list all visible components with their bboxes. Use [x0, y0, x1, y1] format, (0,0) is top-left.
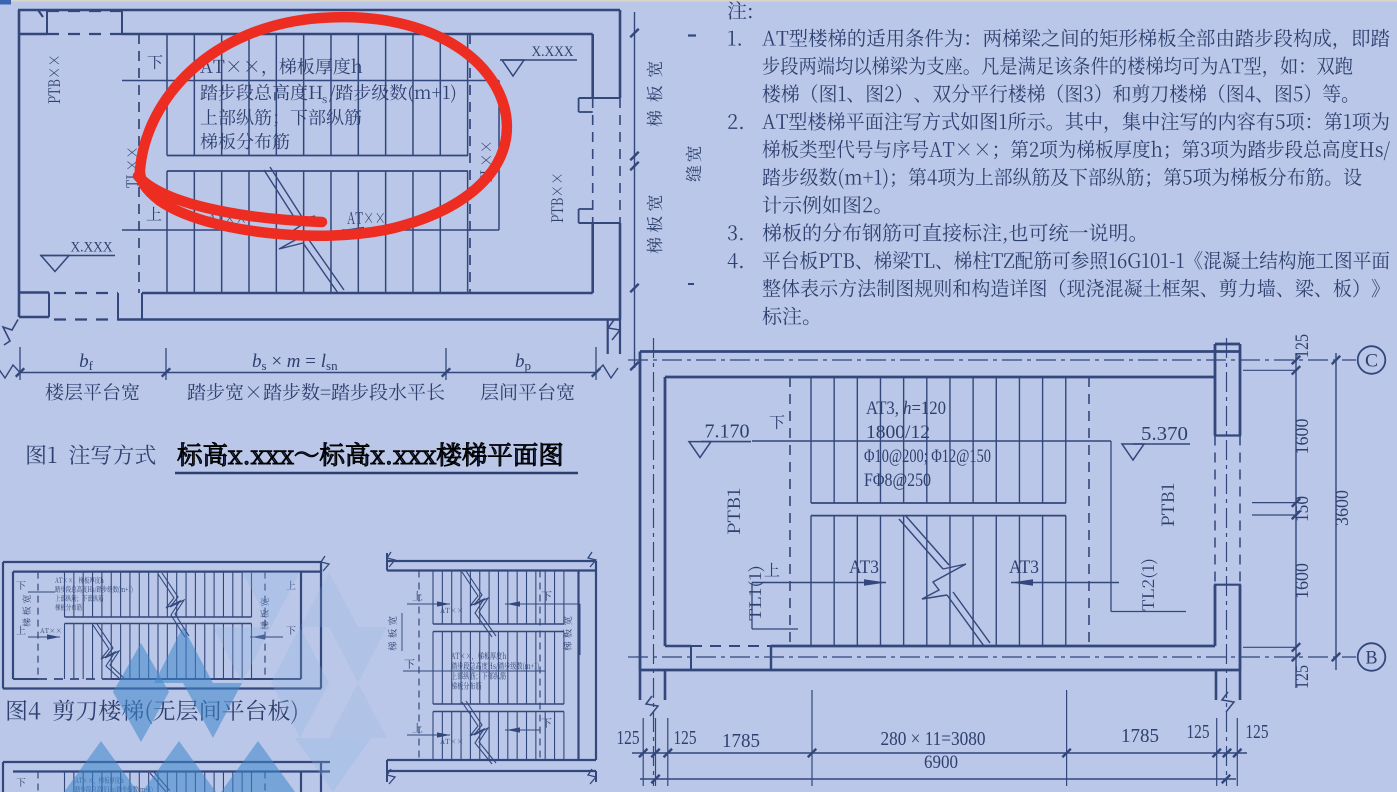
- svg-text:7.170: 7.170: [705, 421, 750, 443]
- svg-text:Φ10@200; Φ12@150: Φ10@200; Φ12@150: [864, 446, 991, 467]
- svg-text:1785: 1785: [1121, 725, 1159, 747]
- svg-text:280 × 11=3080: 280 × 11=3080: [881, 728, 986, 750]
- svg-text:125: 125: [674, 727, 697, 749]
- svg-text:125: 125: [617, 727, 640, 749]
- svg-text:AT3, h=120: AT3, h=120: [866, 398, 946, 419]
- svg-text:1800/12: 1800/12: [866, 422, 930, 443]
- svg-text:3600: 3600: [1332, 490, 1353, 526]
- svg-text:X.XXX: X.XXX: [71, 240, 113, 256]
- svg-text:125: 125: [1187, 721, 1210, 743]
- svg-text:X.XXX: X.XXX: [532, 44, 574, 60]
- svg-text:AT3: AT3: [1009, 557, 1039, 578]
- svg-text:1600: 1600: [1292, 419, 1313, 455]
- svg-text:FΦ8@250: FΦ8@250: [864, 470, 931, 491]
- svg-text:6900: 6900: [924, 752, 958, 773]
- svg-text:1600: 1600: [1292, 563, 1313, 599]
- svg-text:5.370: 5.370: [1141, 423, 1188, 445]
- svg-text:B: B: [1366, 648, 1378, 669]
- svg-text:AT3: AT3: [849, 557, 879, 578]
- svg-text:125: 125: [1246, 721, 1269, 743]
- svg-text:1785: 1785: [722, 730, 760, 752]
- svg-text:125: 125: [1292, 665, 1313, 689]
- svg-text:150: 150: [1292, 496, 1313, 522]
- svg-text:C: C: [1365, 351, 1378, 372]
- svg-text:125: 125: [1292, 334, 1313, 358]
